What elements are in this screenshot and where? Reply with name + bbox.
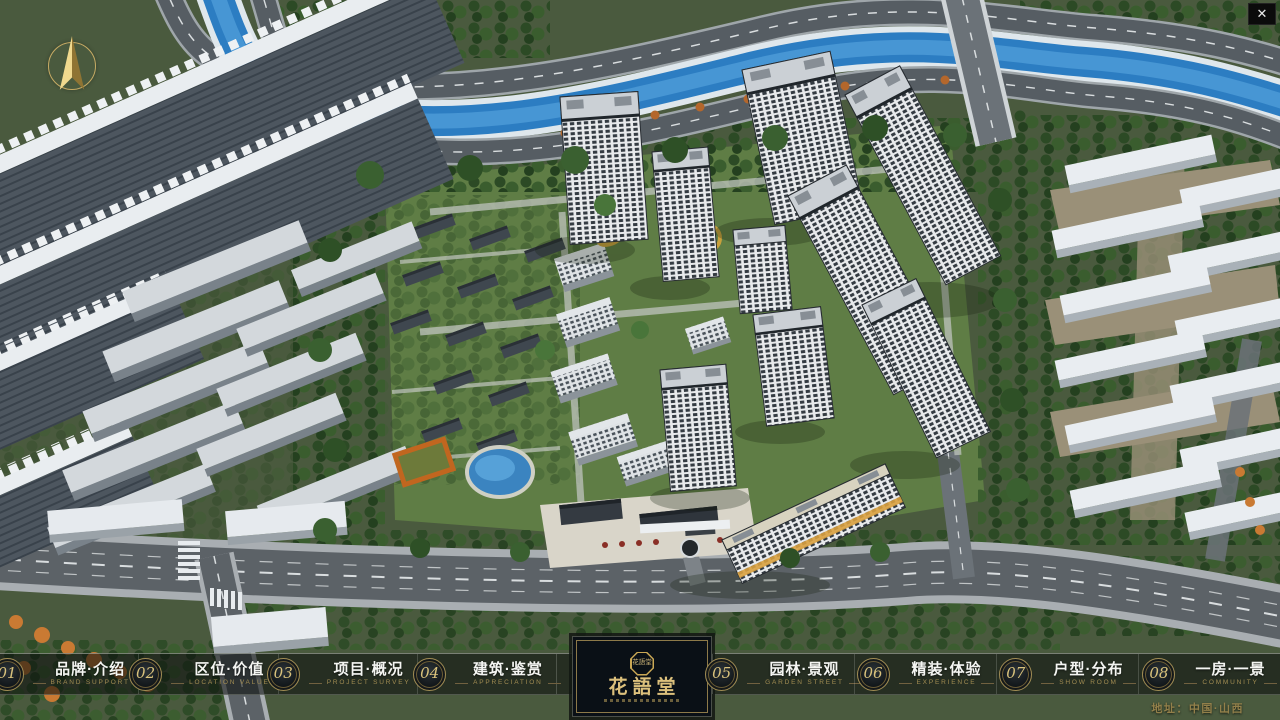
nav-item-labels: 园林·景观GARDEN STREET bbox=[747, 662, 862, 687]
nav-item-number: 03 bbox=[274, 664, 293, 682]
nav-item-label-en: GARDEN STREET bbox=[747, 680, 862, 687]
nav-item-number: 04 bbox=[420, 664, 439, 682]
nav-item-unit-distribution[interactable]: 07户型·分布SHOW ROOM bbox=[996, 654, 1138, 694]
brand-name: 花語堂 bbox=[603, 678, 680, 697]
brand-seal-text: 花語堂 bbox=[632, 653, 653, 674]
nav-item-label-zh: 精装·体验 bbox=[912, 662, 982, 677]
nav-item-garden-landscape[interactable]: 05园林·景观GARDEN STREET bbox=[713, 654, 854, 694]
nav-item-number-badge: 02 bbox=[129, 658, 162, 691]
nav-item-location-value[interactable]: 02区位·价值LOCATION VALUE bbox=[138, 654, 277, 694]
nav-item-room-view[interactable]: 08一房·一景COMMUNITY bbox=[1138, 654, 1280, 694]
brand-seal-icon: 花語堂 bbox=[630, 652, 654, 676]
nav-item-labels: 建筑·鉴赏APPRECIATION bbox=[455, 662, 561, 687]
nav-item-label-zh: 建筑·鉴赏 bbox=[473, 662, 543, 677]
nav-item-label-zh: 户型·分布 bbox=[1053, 662, 1123, 677]
nav-item-labels: 户型·分布SHOW ROOM bbox=[1041, 662, 1135, 687]
nav-item-number-badge: 01 bbox=[0, 658, 24, 691]
nav-item-number-badge: 06 bbox=[857, 658, 890, 691]
nav-item-project-overview[interactable]: 03项目·概况PROJECT SURVEY bbox=[278, 654, 417, 694]
brand-subline-decor bbox=[604, 699, 680, 702]
nav-item-label-en: PROJECT SURVEY bbox=[309, 680, 429, 687]
navbar-left-items: 01品牌·介绍BRAND SUPPORT02区位·价值LOCATION VALU… bbox=[0, 654, 557, 694]
nav-item-number-badge: 04 bbox=[413, 658, 446, 691]
nav-item-number: 01 bbox=[0, 664, 17, 682]
nav-item-number-badge: 07 bbox=[999, 658, 1032, 691]
nav-item-label-zh: 区位·价值 bbox=[194, 662, 264, 677]
nav-item-label-en: EXPERIENCE bbox=[899, 680, 995, 687]
project-address: 地址：中国·山西 bbox=[1151, 700, 1244, 716]
nav-item-label-en: APPRECIATION bbox=[455, 680, 561, 687]
nav-item-interior-experience[interactable]: 06精装·体验EXPERIENCE bbox=[854, 654, 996, 694]
brand-logo-panel[interactable]: 花語堂 花語堂 bbox=[572, 636, 712, 717]
compass-north-indicator bbox=[44, 38, 100, 94]
navbar-right-items: 05园林·景观GARDEN STREET06精装·体验EXPERIENCE07户… bbox=[712, 654, 1280, 694]
nav-item-labels: 精装·体验EXPERIENCE bbox=[899, 662, 995, 687]
brand-logo-frame: 花語堂 花語堂 bbox=[576, 640, 708, 713]
close-button[interactable]: ✕ bbox=[1248, 3, 1276, 25]
nav-item-labels: 项目·概况PROJECT SURVEY bbox=[309, 662, 429, 687]
presentation-viewport[interactable]: ✕ 01品牌·介绍BRAND SUPPORT02区位·价值LOCATION VA… bbox=[0, 0, 1280, 720]
aerial-map-render[interactable] bbox=[0, 0, 1280, 720]
nav-item-label-zh: 园林·景观 bbox=[770, 662, 840, 677]
nav-item-label-en: SHOW ROOM bbox=[1041, 680, 1135, 687]
nav-item-number: 05 bbox=[712, 664, 731, 682]
nav-item-label-zh: 品牌·介绍 bbox=[55, 662, 125, 677]
nav-item-number: 08 bbox=[1149, 664, 1168, 682]
nav-item-label-zh: 一房·一景 bbox=[1196, 662, 1266, 677]
nav-item-number: 02 bbox=[136, 664, 155, 682]
bottom-navbar: 01品牌·介绍BRAND SUPPORT02区位·价值LOCATION VALU… bbox=[0, 653, 1280, 695]
nav-item-architecture-appreciation[interactable]: 04建筑·鉴赏APPRECIATION bbox=[417, 654, 556, 694]
nav-item-number: 06 bbox=[864, 664, 883, 682]
nav-item-label-en: COMMUNITY bbox=[1184, 680, 1276, 687]
nav-item-number-badge: 03 bbox=[267, 658, 300, 691]
nav-item-number: 07 bbox=[1006, 664, 1025, 682]
nav-item-brand-intro[interactable]: 01品牌·介绍BRAND SUPPORT bbox=[0, 654, 138, 694]
nav-item-number-badge: 08 bbox=[1142, 658, 1175, 691]
nav-item-label-zh: 项目·概况 bbox=[334, 662, 404, 677]
map-layers bbox=[0, 0, 1280, 720]
nav-item-number-badge: 05 bbox=[705, 658, 738, 691]
nav-item-labels: 一房·一景COMMUNITY bbox=[1184, 662, 1276, 687]
